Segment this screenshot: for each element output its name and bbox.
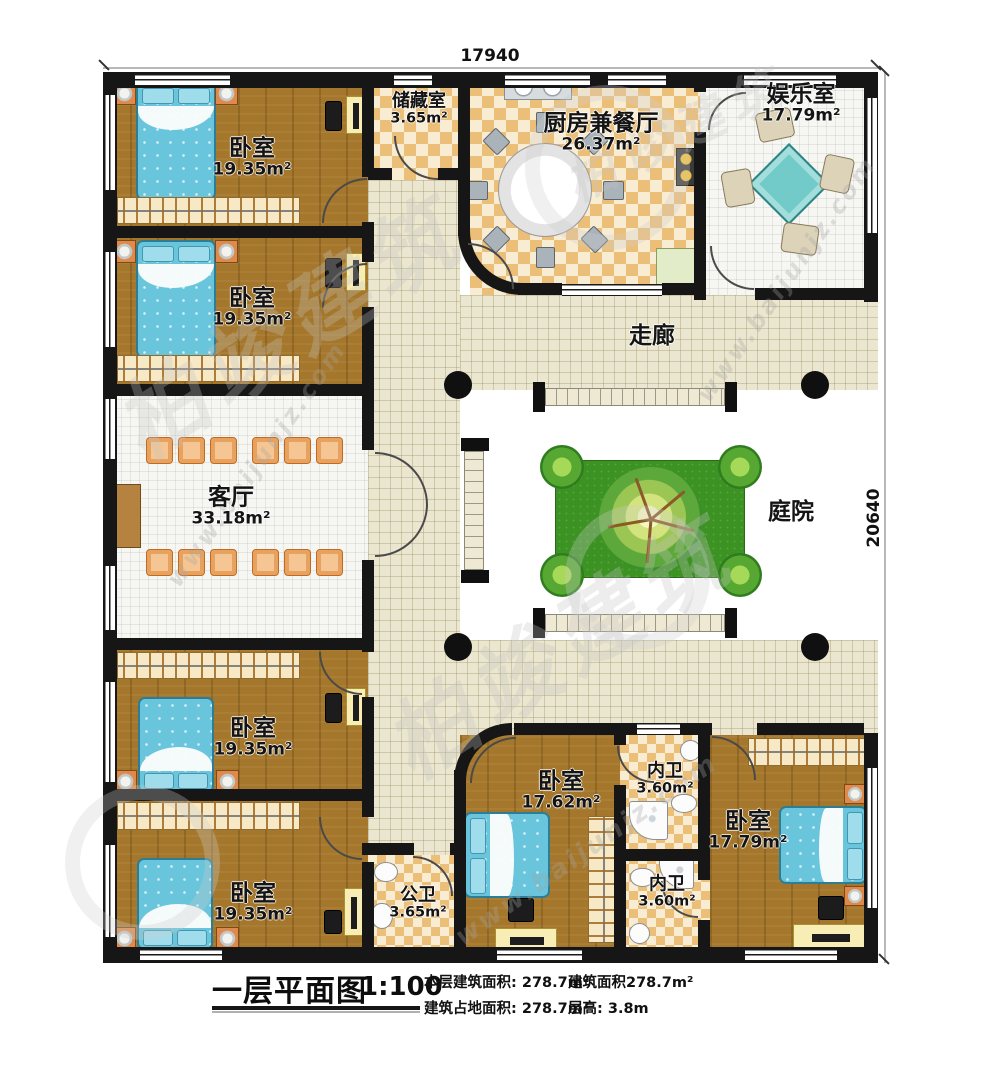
room-area: 3.60m² <box>636 781 693 797</box>
room-label-public-bath: 公卫 3.65m² <box>389 887 446 922</box>
shrub <box>718 445 762 489</box>
pillow <box>470 818 486 854</box>
room-name: 卧室 <box>522 770 601 794</box>
pillow <box>470 858 486 894</box>
railing-post <box>725 608 737 638</box>
stat-label: 建筑占地面积: <box>424 1001 517 1017</box>
railing <box>545 388 725 406</box>
desk-chair <box>324 910 342 934</box>
stat-total-area: 建筑面积278.7m² <box>568 971 693 992</box>
armchair <box>210 437 237 464</box>
railing-post <box>533 382 545 412</box>
room-area: 17.62m² <box>522 794 601 813</box>
tv-icon <box>353 103 359 129</box>
column <box>444 633 472 661</box>
sink <box>374 862 398 882</box>
shrub <box>718 553 762 597</box>
wall <box>450 843 460 855</box>
bed <box>136 240 216 358</box>
pillow <box>178 88 210 104</box>
wall <box>694 283 706 300</box>
room-name: 客厅 <box>192 486 271 510</box>
nightstand <box>215 240 238 263</box>
pillow <box>142 246 174 262</box>
dimension-width: 17940 <box>460 46 519 66</box>
room-area: 19.35m² <box>213 161 292 180</box>
tv-cabinet <box>344 888 364 936</box>
railing-post <box>461 438 489 451</box>
stat-label: 层高: <box>568 1001 603 1017</box>
bed-sheet <box>139 904 211 928</box>
railing-post <box>461 570 489 583</box>
stove <box>676 148 696 186</box>
nightstand <box>844 784 866 804</box>
room-label-bedroom-w: 卧室 19.35m² <box>213 287 292 330</box>
room-name: 厨房兼餐厅 <box>544 112 659 136</box>
window <box>866 98 878 233</box>
dining-chair <box>467 181 488 200</box>
armchair <box>178 437 205 464</box>
window <box>562 284 662 296</box>
wall <box>103 226 368 238</box>
wall <box>362 862 374 963</box>
dining-chair <box>603 181 624 200</box>
wall <box>662 283 694 295</box>
armchair <box>210 549 237 576</box>
wardrobe <box>117 652 300 679</box>
armchair <box>284 549 311 576</box>
window <box>745 949 837 961</box>
window <box>140 949 222 961</box>
room-name: 卧室 <box>214 717 293 741</box>
wall <box>103 789 368 801</box>
floor-corridor-bottom <box>368 640 878 735</box>
railing-post <box>725 382 737 412</box>
stat-label: 本层建筑面积: <box>424 975 517 991</box>
plan-title: 一层平面图 <box>212 966 367 1010</box>
wall <box>103 72 117 963</box>
room-name: 内卫 <box>638 876 695 895</box>
wall <box>454 770 466 963</box>
nightstand <box>844 886 866 906</box>
wall <box>362 72 374 177</box>
wardrobe <box>117 355 300 382</box>
wall <box>614 785 626 963</box>
wall <box>362 222 374 262</box>
room-area: 3.65m² <box>390 111 447 127</box>
pillow <box>143 930 173 946</box>
window <box>497 949 582 961</box>
railing-post <box>533 608 545 638</box>
armchair <box>316 437 343 464</box>
window <box>104 682 116 782</box>
bed <box>136 82 216 200</box>
bed <box>779 806 867 884</box>
bed <box>138 697 214 793</box>
wall <box>362 307 374 450</box>
room-area: 26.37m² <box>544 136 659 155</box>
window <box>505 74 590 86</box>
wall <box>103 384 368 396</box>
wall <box>368 168 392 180</box>
room-label-bedroom-sw1: 卧室 19.35m² <box>214 717 293 760</box>
wall <box>518 283 562 295</box>
room-area: 19.35m² <box>213 311 292 330</box>
wall <box>614 849 710 861</box>
room-label-ensuite-s: 内卫 3.60m² <box>638 876 695 911</box>
stat-floor-area: 本层建筑面积: 278.7m² <box>424 971 589 992</box>
window <box>104 399 116 459</box>
room-label-storage: 储藏室 3.65m² <box>390 93 447 128</box>
title-underline <box>212 1006 420 1013</box>
desk-chair <box>325 693 342 723</box>
window <box>135 74 230 86</box>
stat-value: 278.7m² <box>626 975 693 991</box>
stat-storey-height: 层高: 3.8m <box>568 997 649 1018</box>
pillow <box>142 88 174 104</box>
column <box>801 633 829 661</box>
room-area: 3.60m² <box>638 894 695 910</box>
room-name: 卧室 <box>709 810 788 834</box>
wardrobe <box>117 802 300 830</box>
bed-sheet <box>140 747 212 771</box>
armchair <box>146 549 173 576</box>
window <box>104 252 116 347</box>
wall <box>755 288 864 300</box>
room-name: 卧室 <box>213 137 292 161</box>
wardrobe <box>748 738 866 766</box>
armchair <box>284 437 311 464</box>
bed-sheet <box>819 808 843 882</box>
pillow <box>178 246 210 262</box>
armchair <box>252 549 279 576</box>
dining-chair <box>536 247 555 268</box>
room-name: 娱乐室 <box>762 83 841 107</box>
room-area: 33.18m² <box>192 510 271 529</box>
window <box>394 74 432 86</box>
wall <box>103 638 368 650</box>
tv-icon <box>812 934 850 942</box>
room-label-entertainment: 娱乐室 17.79m² <box>762 83 841 126</box>
stat-value: 3.8m <box>608 1001 649 1017</box>
room-area: 17.79m² <box>762 107 841 126</box>
bed <box>137 858 213 950</box>
window <box>866 768 878 908</box>
game-chair <box>720 168 756 209</box>
desk-chair <box>508 898 534 922</box>
room-name: 公卫 <box>389 887 446 906</box>
bed-sheet <box>138 264 214 288</box>
tv-icon <box>510 937 544 945</box>
floor-plan-sheet: 17940 20640 卧室 19.35m² 卧室 19.35m² 储藏室 3.… <box>0 0 1000 1080</box>
wall <box>680 723 712 735</box>
wall <box>614 735 626 745</box>
wall <box>694 72 706 92</box>
room-label-bedroom-se: 卧室 17.79m² <box>709 810 788 853</box>
window <box>637 723 680 735</box>
bed <box>464 812 550 898</box>
room-label-kitchen-dining: 厨房兼餐厅 26.37m² <box>544 112 659 155</box>
wall <box>514 723 637 735</box>
sink <box>629 923 650 944</box>
desk-chair <box>325 101 342 131</box>
dimension-tick <box>98 59 109 70</box>
stat-label: 建筑面积 <box>568 975 626 991</box>
desk-chair <box>818 896 844 920</box>
room-name: 卧室 <box>214 882 293 906</box>
bed-sheet <box>138 106 214 130</box>
tv-icon <box>351 897 357 929</box>
wall <box>362 560 374 652</box>
window <box>104 95 116 190</box>
wall <box>438 168 470 180</box>
room-name: 储藏室 <box>390 93 447 112</box>
room-label-living: 客厅 33.18m² <box>192 486 271 529</box>
railing <box>464 451 484 570</box>
room-name: 内卫 <box>636 763 693 782</box>
room-area: 3.65m² <box>389 905 446 921</box>
room-label-courtyard: 庭院 <box>768 500 814 524</box>
wall <box>458 72 470 180</box>
shrub <box>540 445 584 489</box>
window <box>104 845 116 937</box>
fridge <box>656 248 696 286</box>
room-area: 19.35m² <box>214 741 293 760</box>
window <box>104 566 116 630</box>
wall <box>362 843 414 855</box>
pillow <box>144 773 174 789</box>
wall <box>698 920 710 963</box>
room-area: 19.35m² <box>214 906 293 925</box>
pillow <box>178 773 208 789</box>
dimension-line-top <box>103 67 878 69</box>
column <box>801 371 829 399</box>
column <box>444 371 472 399</box>
railing <box>545 614 725 632</box>
dimension-line-right <box>884 72 886 963</box>
wall <box>698 735 710 880</box>
room-label-bedroom-sw2: 卧室 19.35m² <box>214 882 293 925</box>
armchair <box>252 437 279 464</box>
room-label-bedroom-s: 卧室 17.62m² <box>522 770 601 813</box>
armchair <box>146 437 173 464</box>
armchair <box>316 549 343 576</box>
wardrobe <box>117 197 300 224</box>
game-chair <box>780 222 820 257</box>
room-name: 卧室 <box>213 287 292 311</box>
tv-icon <box>353 695 359 721</box>
wall <box>362 697 374 817</box>
window <box>608 74 666 86</box>
pillow <box>847 812 863 844</box>
dining-table <box>498 143 592 237</box>
shrub <box>540 553 584 597</box>
room-name: 庭院 <box>768 500 814 524</box>
bed-sheet <box>490 814 514 896</box>
dimension-height: 20640 <box>864 488 884 547</box>
wall <box>694 132 706 295</box>
stat-footprint-area: 建筑占地面积: 278.7m² <box>424 997 589 1018</box>
pillow <box>847 848 863 880</box>
side-cabinet <box>115 484 141 548</box>
room-name: 走廊 <box>629 324 675 348</box>
room-label-ensuite-n: 内卫 3.60m² <box>636 763 693 798</box>
armchair <box>178 549 205 576</box>
room-label-corridor: 走廊 <box>629 324 675 348</box>
room-label-bedroom-nw: 卧室 19.35m² <box>213 137 292 180</box>
pillow <box>177 930 207 946</box>
wall <box>757 723 864 735</box>
room-area: 17.79m² <box>709 834 788 853</box>
